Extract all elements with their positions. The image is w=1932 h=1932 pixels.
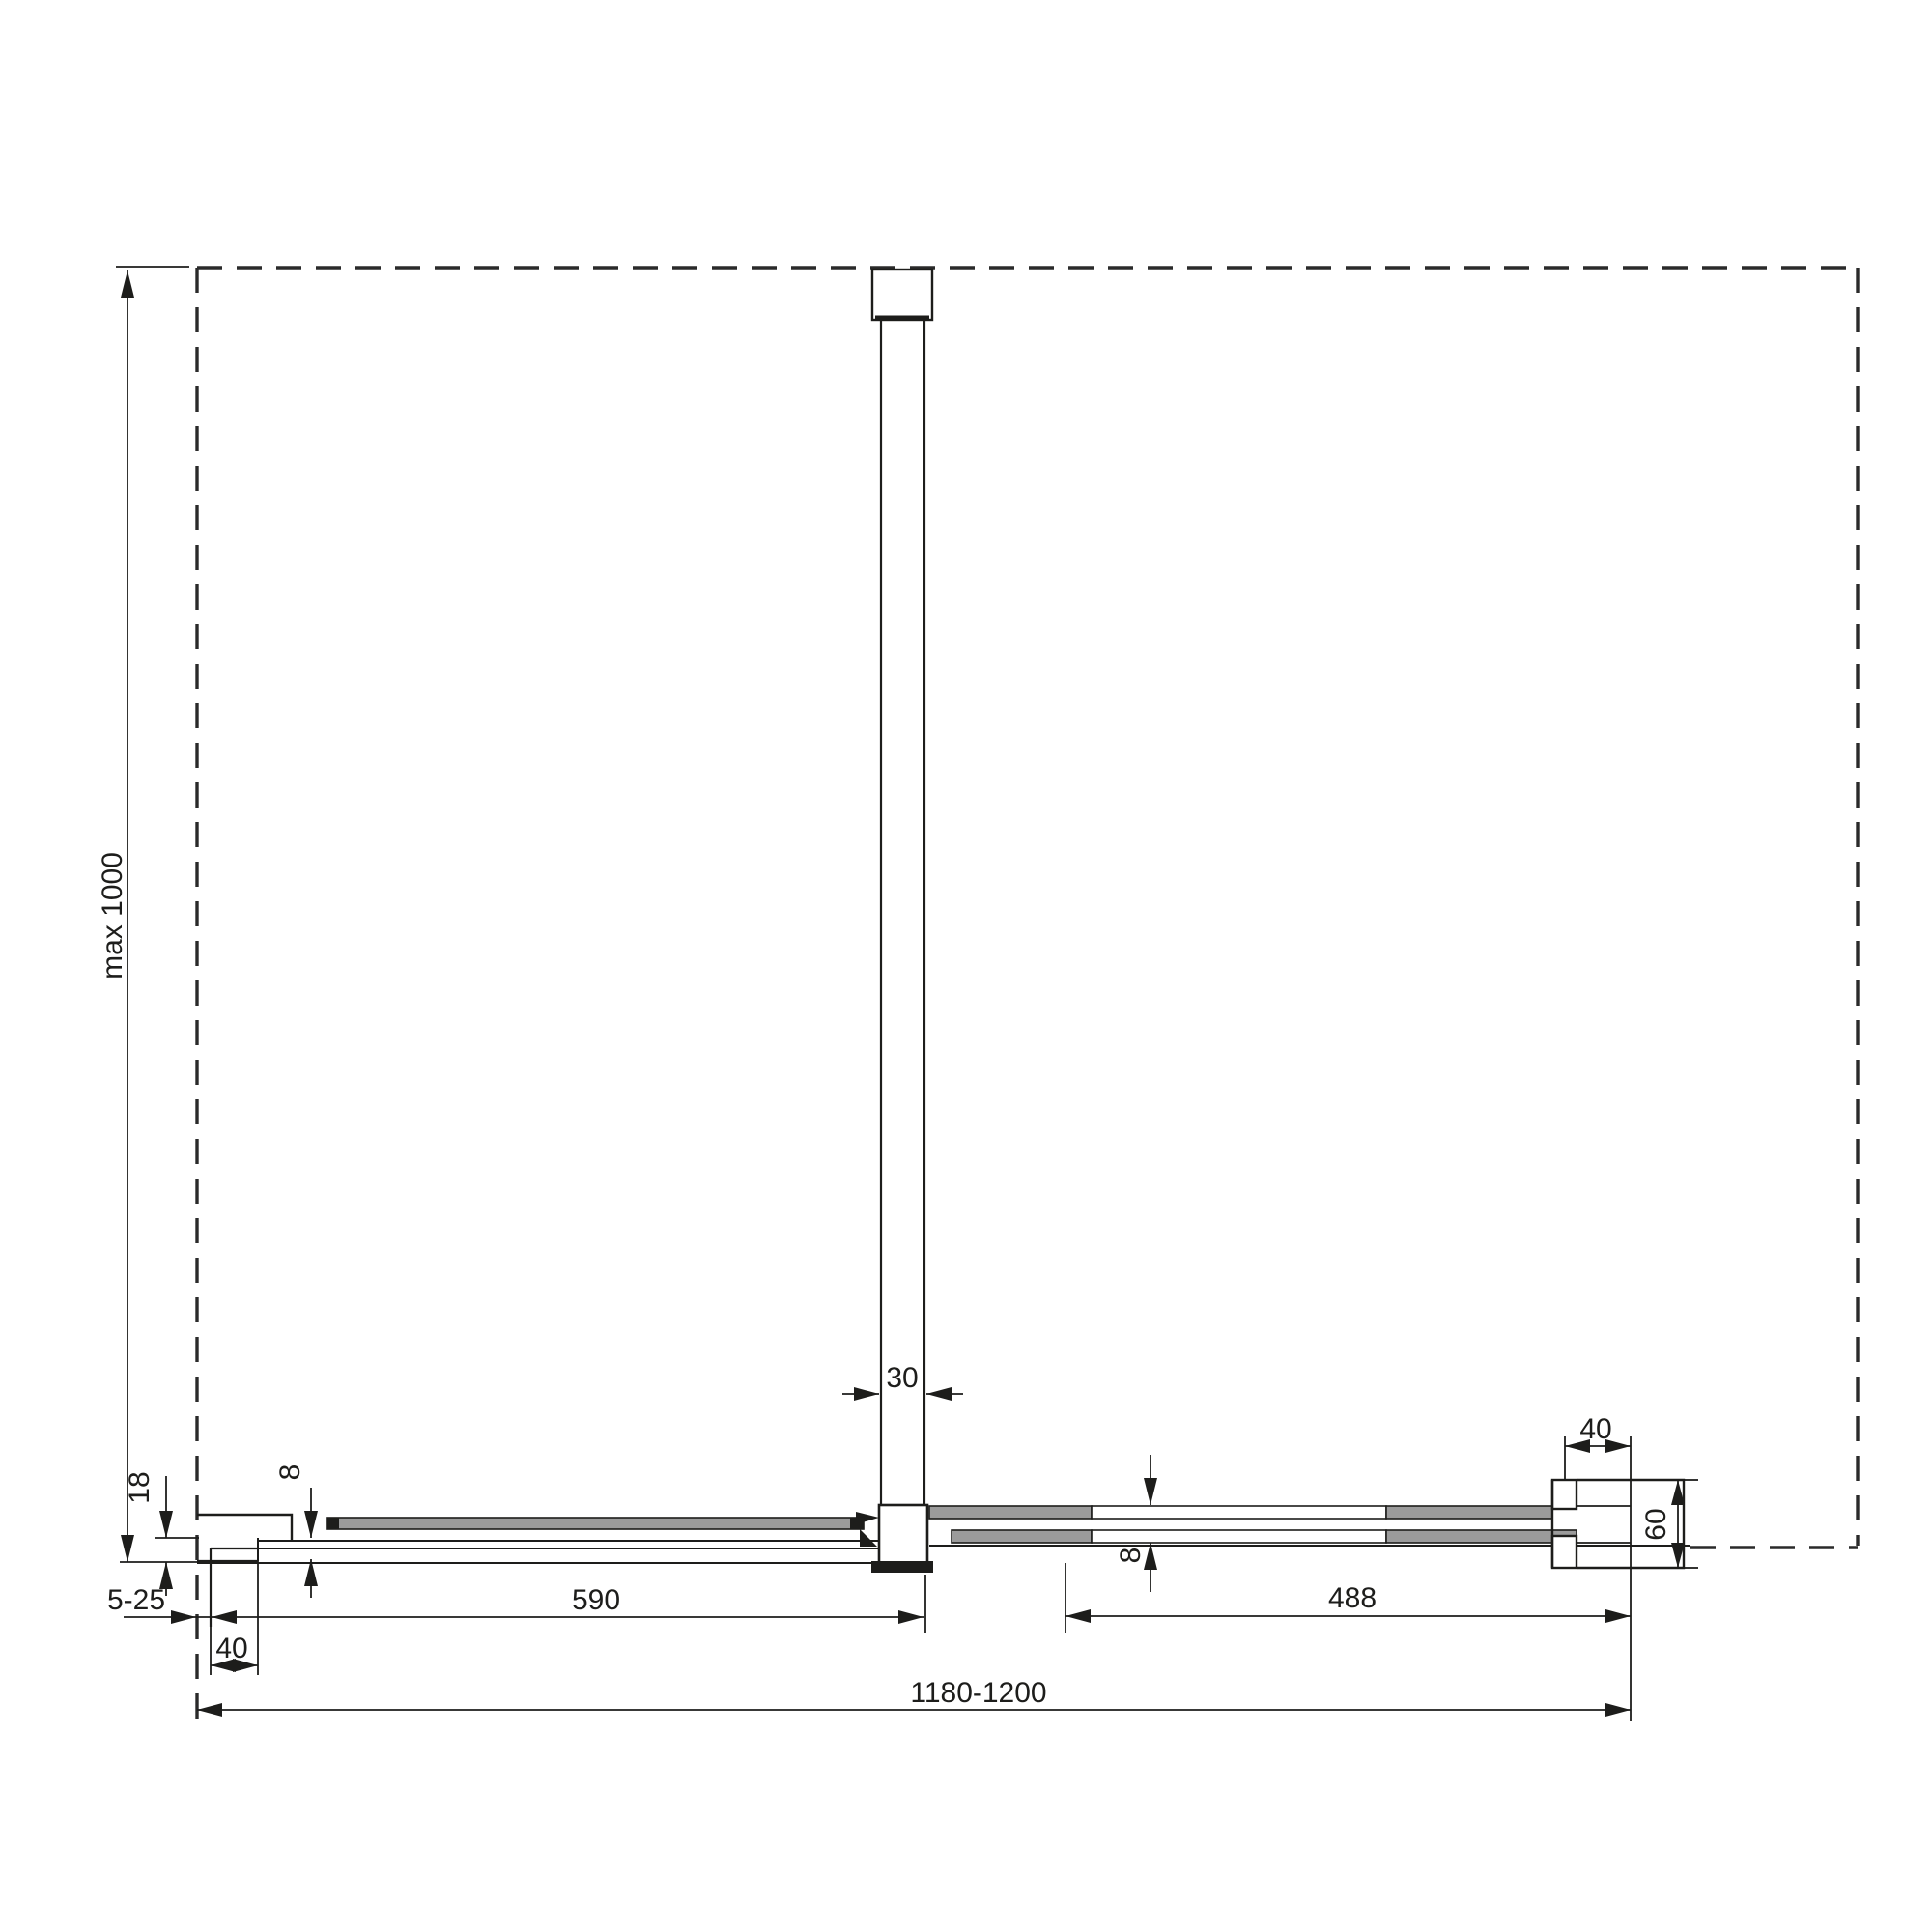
- fixed-glass-panel: [197, 1518, 879, 1563]
- dim-label-40-left: 40: [215, 1633, 247, 1664]
- left-wall-profile: [197, 1515, 292, 1627]
- dim-label-5-25: 5-25: [107, 1584, 165, 1616]
- ceiling-bracket: [872, 270, 932, 320]
- shower-panel-plan-drawing: max 1000 18 8 5-25 590 40: [0, 0, 1932, 1932]
- dim-label-30: 30: [886, 1362, 918, 1394]
- dim-label-8-right: 8: [1115, 1548, 1147, 1564]
- dim-wall-offset: 18: [120, 1471, 199, 1596]
- dim-label-40-right: 40: [1579, 1413, 1611, 1445]
- dim-label-max-height: max 1000: [97, 852, 128, 980]
- dim-label-590: 590: [572, 1584, 620, 1616]
- dim-label-60: 60: [1640, 1508, 1672, 1540]
- dim-overall-width: 1180-1200: [197, 1677, 1631, 1717]
- end-cap-profile: [1552, 1480, 1577, 1568]
- wall-boundary-dashed: [197, 268, 1858, 1721]
- dim-label-18: 18: [124, 1471, 156, 1503]
- dim-label-8-left: 8: [274, 1464, 306, 1481]
- dim-glass-8-left: 8: [274, 1464, 318, 1598]
- right-rail-upper: [929, 1506, 1552, 1519]
- support-brace: [881, 320, 924, 1505]
- technical-drawing-page: max 1000 18 8 5-25 590 40: [0, 0, 1932, 1932]
- dim-label-overall: 1180-1200: [910, 1677, 1046, 1709]
- dim-glass-8-right: 8: [1115, 1455, 1157, 1592]
- dim-max-height: max 1000: [97, 267, 189, 1562]
- dim-label-488: 488: [1328, 1582, 1377, 1614]
- dim-brace-profile: 30: [842, 1362, 963, 1401]
- dim-wall-adjustment-and-fixed-panel: 5-25 590: [107, 1575, 925, 1633]
- top-rail-left: [327, 1518, 864, 1529]
- dim-return-panel-depth: 60: [1640, 1480, 1685, 1568]
